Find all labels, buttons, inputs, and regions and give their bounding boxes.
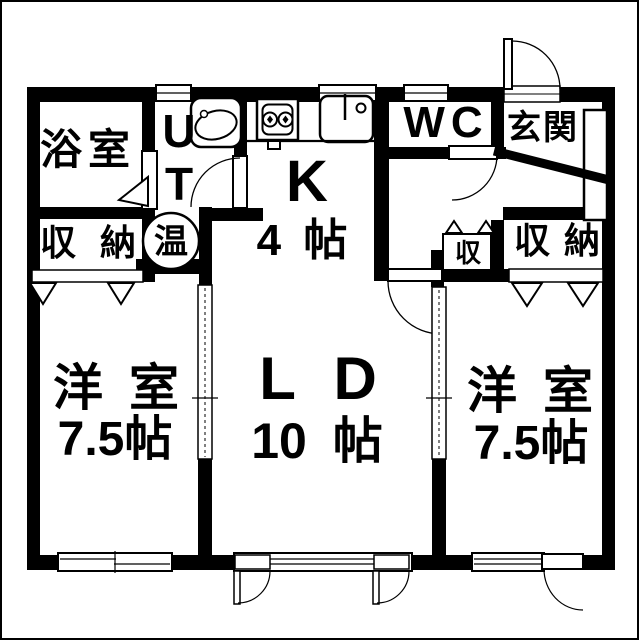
- sliding-partition-left: [192, 285, 218, 459]
- wall-left: [27, 87, 40, 570]
- ut-door: [191, 156, 247, 208]
- bath-door-triangle: [119, 177, 148, 206]
- window-ut: [156, 85, 191, 101]
- kitchen-size-label: 4 帖: [257, 219, 348, 263]
- western-room-right-size-label: 7.5帖: [474, 420, 589, 468]
- wc-label: WC: [403, 101, 488, 145]
- western-room-right-label: 洋 室: [467, 366, 593, 416]
- utility-label-u: U: [162, 108, 195, 154]
- bathroom-label: 浴室: [40, 129, 136, 171]
- living-dining-size-label: 10 帖: [251, 416, 383, 466]
- kitchen-sink-icon: [320, 94, 373, 142]
- closet-left-doors: [30, 270, 143, 304]
- wall-closet-divider: [491, 220, 504, 270]
- wall-bath-bottom: [27, 207, 155, 219]
- western-room-left-label: 洋 室: [53, 363, 179, 413]
- entrance-label: 玄関: [507, 111, 579, 145]
- closet-left-label: 収 納: [40, 225, 136, 261]
- floor-plan: 浴室 U T 温 収 納 K 4 帖 WC 玄関 収 収 納 L D 10 帖 …: [0, 0, 639, 640]
- kitchen-label: K: [286, 153, 328, 211]
- water-heater-label: 温: [154, 225, 188, 259]
- closet-right-label: 収 納: [514, 223, 600, 259]
- wall-partition-right-lower: [432, 459, 446, 559]
- entry-door: [504, 39, 560, 102]
- floor-plan-drawing: [2, 2, 639, 640]
- utility-label-t: T: [165, 161, 193, 207]
- closet-hall-label: 収: [455, 240, 481, 266]
- stove-icon: [257, 99, 298, 140]
- closet-right-doors: [509, 269, 603, 306]
- wall-kitchen-hall: [374, 87, 389, 281]
- ld-terrace-doors: [234, 553, 412, 604]
- sliding-partition-right: [426, 287, 452, 459]
- shoe-cabinet: [584, 110, 607, 220]
- door-room-right: [542, 554, 583, 610]
- wall-under-ut-door: [199, 208, 263, 221]
- window-room-left: [58, 551, 172, 573]
- wall-partition-left-lower: [198, 459, 212, 559]
- wash-basin-icon: [191, 98, 241, 147]
- wc-door: [449, 146, 497, 200]
- window-room-right: [472, 553, 544, 571]
- living-dining-label: L D: [259, 349, 377, 409]
- western-room-left-size-label: 7.5帖: [58, 416, 173, 464]
